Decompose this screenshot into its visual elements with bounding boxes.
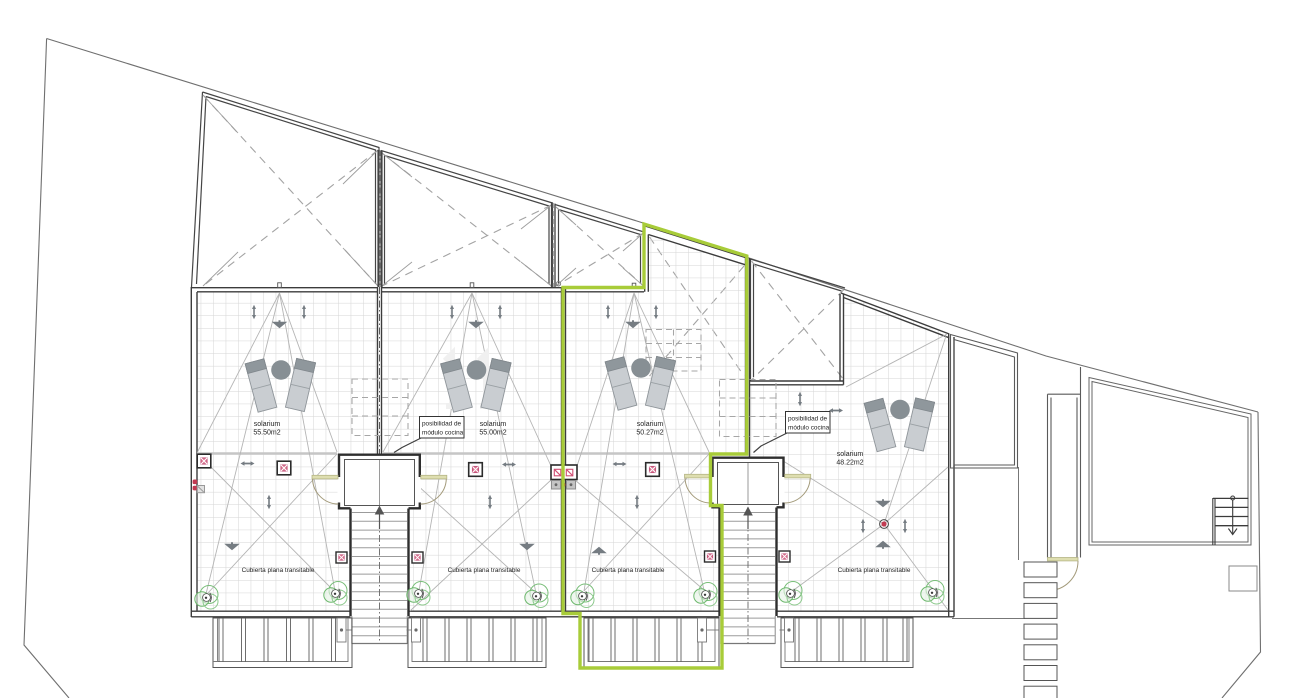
svg-text:módulo cocina: módulo cocina bbox=[788, 425, 830, 432]
svg-text:Cubierta plana transitable: Cubierta plana transitable bbox=[242, 567, 315, 574]
svg-text:solarium: solarium bbox=[837, 451, 864, 458]
svg-text:posibilidad de: posibilidad de bbox=[788, 416, 828, 423]
svg-text:solarium: solarium bbox=[480, 421, 507, 428]
svg-text:solarium: solarium bbox=[254, 421, 281, 428]
svg-text:48.22m2: 48.22m2 bbox=[836, 459, 863, 466]
svg-text:50.27m2: 50.27m2 bbox=[636, 429, 663, 436]
svg-text:55.00m2: 55.00m2 bbox=[479, 429, 506, 436]
svg-text:módulo cocina: módulo cocina bbox=[422, 430, 464, 437]
svg-text:Cubierta plana transitable: Cubierta plana transitable bbox=[448, 567, 521, 574]
svg-text:Cubierta plana transitable: Cubierta plana transitable bbox=[592, 567, 665, 574]
svg-text:posibilidad de: posibilidad de bbox=[422, 421, 462, 428]
svg-text:Cubierta plana transitable: Cubierta plana transitable bbox=[838, 567, 911, 574]
svg-text:55.50m2: 55.50m2 bbox=[253, 429, 280, 436]
svg-text:solarium: solarium bbox=[637, 421, 664, 428]
